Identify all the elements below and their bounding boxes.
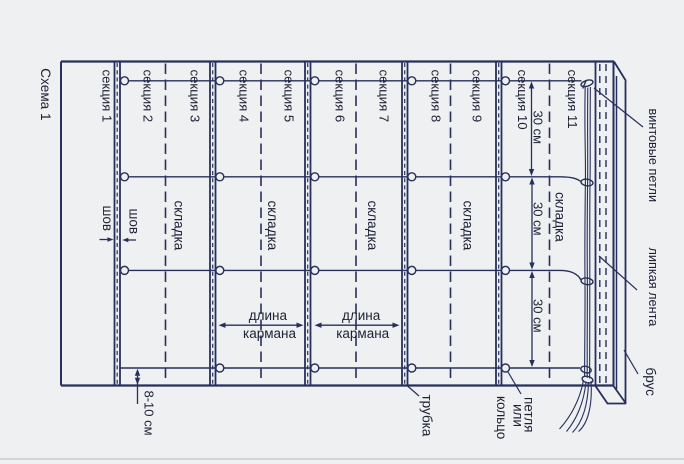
svg-text:кольцо: кольцо bbox=[494, 396, 509, 439]
svg-text:липкая лента: липкая лента bbox=[646, 248, 660, 328]
svg-text:складка: складка bbox=[365, 201, 380, 251]
svg-text:секция 5: секция 5 bbox=[282, 70, 297, 123]
svg-text:8-10 см: 8-10 см bbox=[142, 391, 157, 436]
svg-text:складка: складка bbox=[171, 201, 186, 251]
svg-text:шов: шов bbox=[100, 206, 115, 232]
svg-text:секция 8: секция 8 bbox=[429, 70, 444, 123]
svg-text:шов: шов bbox=[126, 209, 141, 235]
svg-text:секция 11: секция 11 bbox=[565, 70, 580, 129]
svg-text:брус: брус bbox=[643, 368, 658, 397]
svg-text:секция 1: секция 1 bbox=[100, 70, 115, 123]
svg-text:секция 3: секция 3 bbox=[188, 70, 203, 123]
svg-text:30 см: 30 см bbox=[531, 111, 546, 145]
svg-text:складка: складка bbox=[461, 201, 476, 251]
svg-text:30 см: 30 см bbox=[531, 202, 546, 236]
svg-text:складка: складка bbox=[553, 192, 568, 242]
svg-text:трубка: трубка bbox=[420, 395, 435, 437]
svg-text:или: или bbox=[511, 404, 526, 427]
svg-text:секция 9: секция 9 bbox=[470, 70, 485, 123]
svg-text:секция 2: секция 2 bbox=[141, 70, 156, 123]
svg-text:кармана: кармана bbox=[336, 326, 389, 341]
svg-text:винтовые петли: винтовые петли bbox=[646, 109, 660, 203]
svg-text:30 см: 30 см bbox=[531, 299, 546, 333]
svg-text:длина: длина bbox=[342, 308, 381, 323]
svg-text:секция 4: секция 4 bbox=[237, 70, 252, 123]
svg-text:секция 10: секция 10 bbox=[515, 70, 530, 130]
svg-text:складка: складка bbox=[265, 201, 280, 251]
svg-text:секция 7: секция 7 bbox=[377, 70, 392, 123]
svg-text:кармана: кармана bbox=[243, 326, 296, 341]
svg-text:длина: длина bbox=[249, 308, 288, 323]
svg-text:секция 6: секция 6 bbox=[333, 70, 348, 123]
svg-text:Схема 1: Схема 1 bbox=[38, 68, 53, 120]
